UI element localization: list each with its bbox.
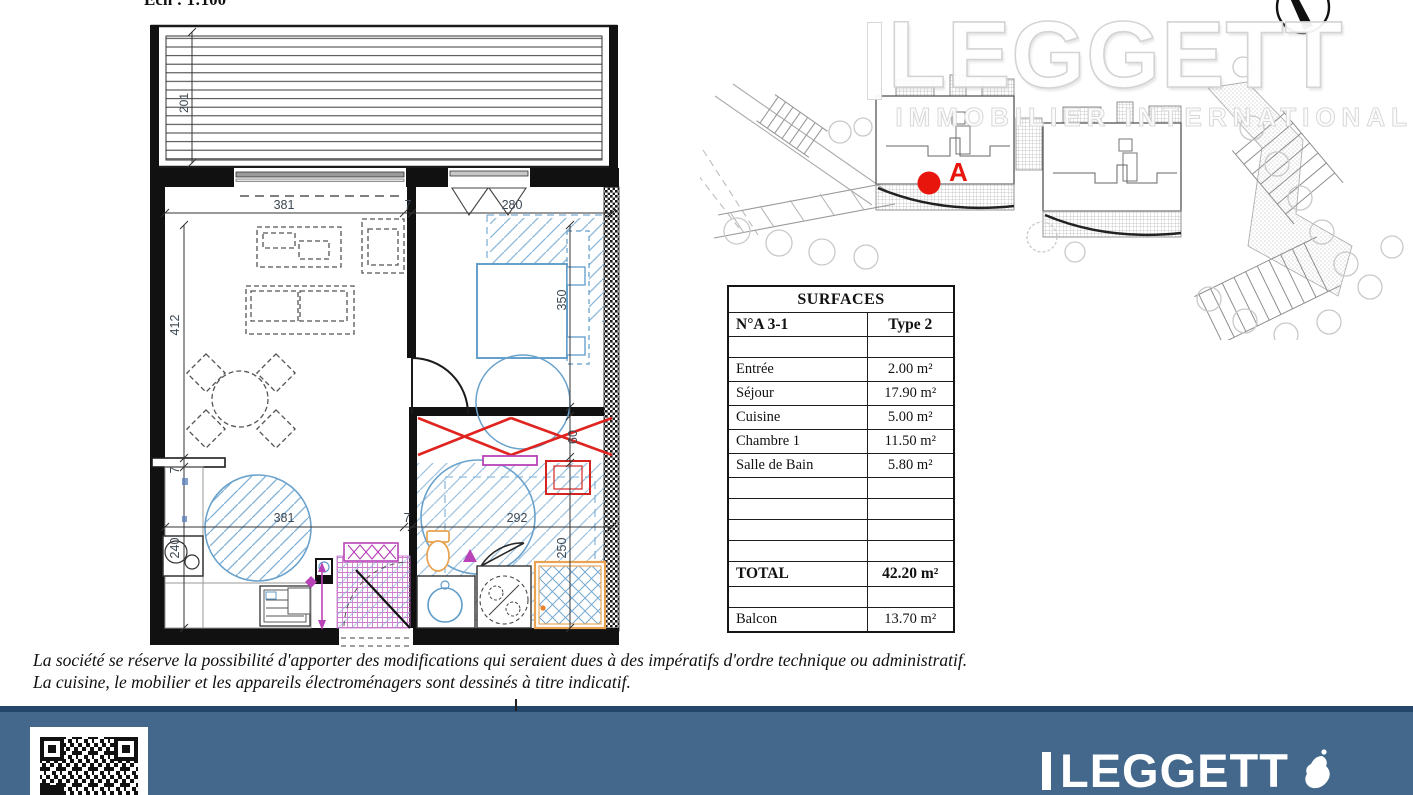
dim-bottom-living: 381 (274, 511, 295, 525)
dim-top-living: 381 (274, 198, 295, 212)
bed (477, 264, 567, 358)
unit-number: N°A 3-1 (728, 313, 867, 337)
living-furniture (187, 219, 404, 448)
total-label: TOTAL (728, 562, 867, 587)
toilet (427, 531, 449, 571)
washbasin (417, 576, 475, 628)
room-label: Séjour (728, 382, 867, 406)
disclaimer-line2: La cuisine, le mobilier et les appareils… (33, 671, 1183, 693)
table-row: Entrée2.00 m² (728, 358, 954, 382)
road-left (700, 84, 895, 238)
unit-marker-dot (918, 172, 941, 195)
dim-bottom-wall: 7 (404, 511, 411, 525)
bathroom (417, 456, 605, 628)
parking-right (1194, 82, 1352, 340)
room-area: 5.80 m² (867, 454, 954, 478)
dim-left-wall: 7 (168, 466, 182, 473)
table-row: Chambre 111.50 m² (728, 430, 954, 454)
chair (187, 354, 225, 392)
room-label: Entrée (728, 358, 867, 382)
unit-type: Type 2 (867, 313, 954, 337)
turning-circle (205, 475, 311, 581)
room-label: Cuisine (728, 406, 867, 430)
table-row: Cuisine5.00 m² (728, 406, 954, 430)
surfaces-title: SURFACES (728, 286, 954, 313)
room-area: 17.90 m² (867, 382, 954, 406)
dim-balcony: 201 (177, 93, 191, 113)
dim-left-living: 412 (168, 315, 182, 336)
dim-bottom-bath: 292 (507, 511, 528, 525)
room-area: 5.00 m² (867, 406, 954, 430)
sofa (246, 286, 354, 334)
corsica-icon (1298, 748, 1334, 794)
balcony-decking (166, 36, 602, 160)
bedroom-door (412, 358, 468, 414)
table-row: Salle de Bain5.80 m² (728, 454, 954, 478)
shelf (152, 458, 225, 467)
room-area: 11.50 m² (867, 430, 954, 454)
total-row: TOTAL 42.20 m² (728, 562, 954, 587)
logo-bar (1042, 752, 1051, 790)
unit-marker: A (905, 155, 1000, 207)
red-cross (418, 418, 612, 455)
washing-machine (477, 566, 531, 628)
balcony: 201 (150, 25, 618, 168)
apartment-floor-plan: 201 (130, 0, 635, 660)
unit-marker-label: A (949, 157, 968, 187)
dim-top-wall: 7 (405, 198, 412, 212)
compass-icon (1277, 0, 1329, 33)
room-area: 2.00 m² (867, 358, 954, 382)
chair (257, 354, 295, 392)
room-label: Salle de Bain (728, 454, 867, 478)
dim-right-bath: 250 (555, 538, 569, 559)
closet-crossed-out (418, 418, 612, 455)
total-area: 42.20 m² (867, 562, 954, 587)
footer-brand: LEGGETT (1060, 747, 1289, 794)
balcony-row: Balcon 13.70 m² (728, 608, 954, 633)
table-row: Séjour17.90 m² (728, 382, 954, 406)
entry-appliance (344, 543, 398, 561)
disclaimer: La société se réserve la possibilité d'a… (33, 649, 1183, 693)
qr-code (30, 727, 148, 795)
room-label: Chambre 1 (728, 430, 867, 454)
insulated-wall (604, 187, 619, 631)
dim-right-bedroom: 350 (555, 290, 569, 311)
disclaimer-line1: La société se réserve la possibilité d'a… (33, 649, 1183, 671)
threshold (483, 456, 537, 465)
tick-mark (515, 699, 517, 711)
dining-table (212, 371, 268, 427)
dim-right-closet: 60 (566, 430, 580, 444)
dim-left-kitchen: 240 (168, 538, 182, 559)
building-b (1043, 102, 1181, 237)
balcony-label: Balcon (728, 608, 867, 633)
surfaces-table: SURFACES N°A 3-1 Type 2 Entrée2.00 m² Sé… (727, 285, 955, 633)
balcony-area: 13.70 m² (867, 608, 954, 633)
dim-top-bedroom: 280 (502, 198, 523, 212)
chair (187, 410, 225, 448)
sink (288, 588, 310, 614)
living-window (234, 168, 406, 196)
floor-plan-document: Ech : 1:100 (0, 0, 1413, 795)
footer-logo: LEGGETT (1042, 747, 1334, 794)
